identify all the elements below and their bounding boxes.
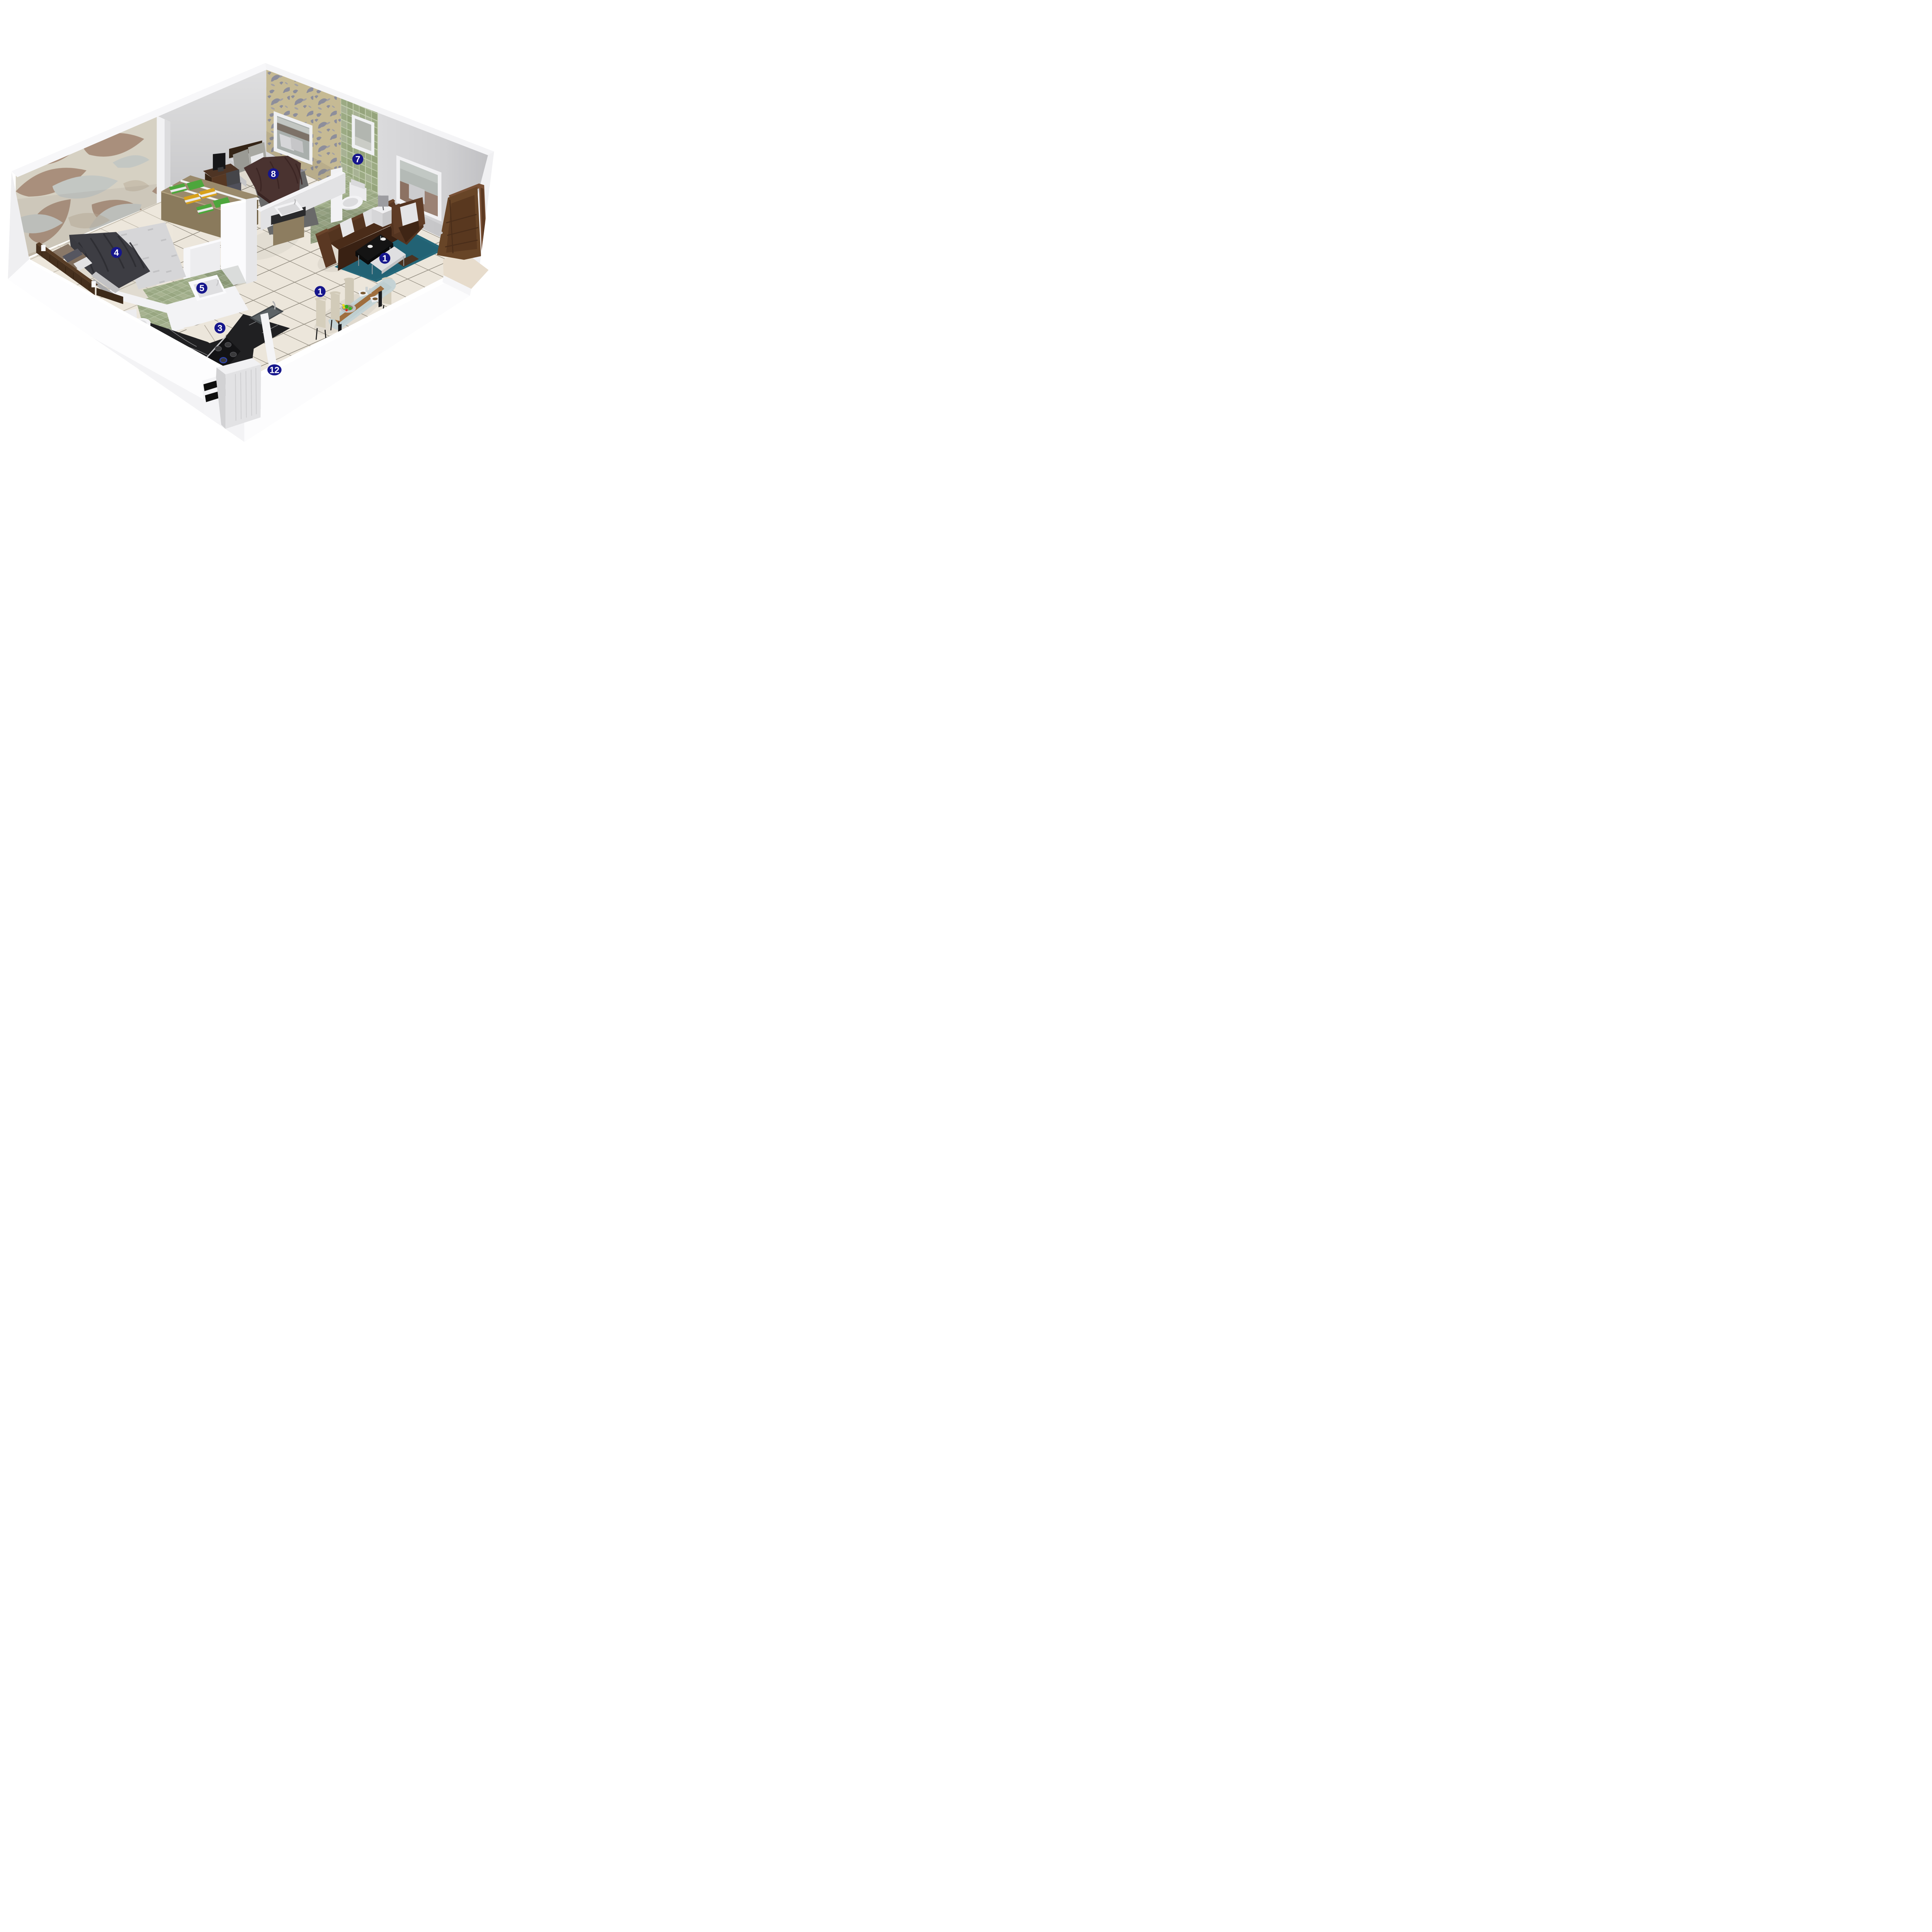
svg-text:1: 1 bbox=[318, 287, 323, 297]
svg-text:3: 3 bbox=[218, 323, 223, 333]
svg-text:12: 12 bbox=[269, 365, 279, 375]
svg-text:7: 7 bbox=[355, 154, 361, 164]
svg-text:5: 5 bbox=[199, 283, 204, 293]
svg-text:4: 4 bbox=[114, 247, 119, 257]
svg-text:8: 8 bbox=[271, 169, 276, 179]
svg-text:1: 1 bbox=[382, 253, 387, 263]
